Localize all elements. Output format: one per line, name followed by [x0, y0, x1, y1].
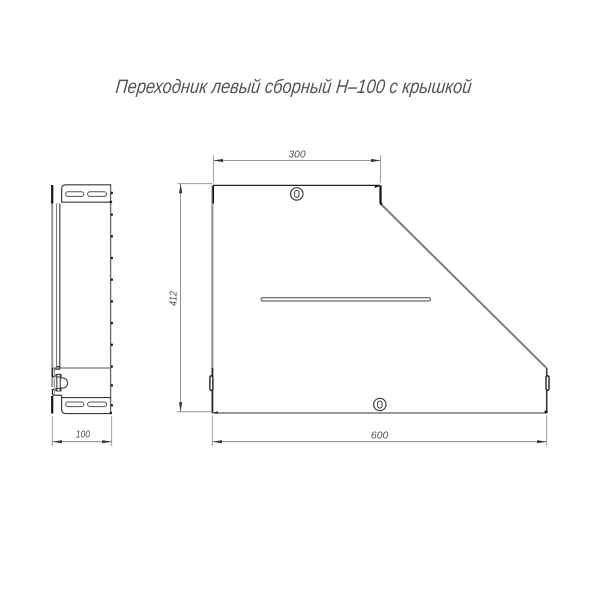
- svg-text:100: 100: [76, 430, 91, 441]
- svg-text:Переходник левый сборный Н–100: Переходник левый сборный Н–100 с крышкой: [114, 76, 472, 98]
- svg-text:600: 600: [371, 430, 389, 441]
- svg-text:412: 412: [169, 291, 180, 306]
- svg-text:300: 300: [289, 149, 306, 160]
